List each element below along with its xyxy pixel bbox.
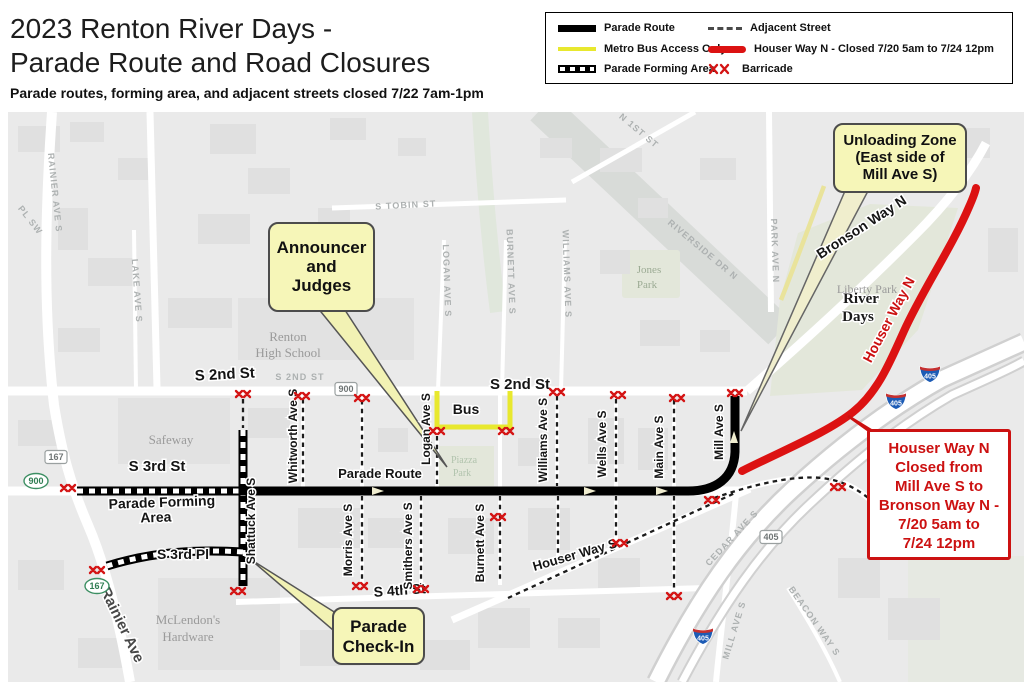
map-canvas: S 2nd StS 2nd StS 3rd StS 3rd PlS 4th St…	[0, 0, 1024, 682]
callout-line: Parade	[334, 617, 423, 637]
street-label: Main Ave S	[652, 415, 666, 478]
state-route-shield: 167	[85, 579, 109, 594]
route-shield: 900	[335, 383, 357, 396]
metro-bus-swatch	[558, 47, 596, 51]
callout-line: 7/24 12pm	[870, 534, 1008, 553]
svg-text:405: 405	[924, 374, 936, 381]
street-label: Mill Ave S	[712, 404, 726, 460]
street-label: Days	[842, 309, 874, 325]
svg-text:405: 405	[697, 636, 709, 643]
callout-line: 7/20 5am to	[870, 515, 1008, 534]
adjacent-street-swatch	[708, 27, 742, 30]
callout-line: Mill Ave S to	[870, 477, 1008, 496]
street-label: Bus	[453, 401, 480, 417]
callout-line: Closed from	[870, 458, 1008, 477]
street-label: Morris Ave S	[341, 504, 355, 576]
closure-swatch	[708, 46, 746, 53]
street-label: S 2nd St	[194, 364, 255, 384]
callout-line: Mill Ave S)	[835, 166, 965, 183]
callout-line: Unloading Zone	[835, 132, 965, 149]
street-label: Burnett Ave S	[473, 504, 487, 582]
state-route-shield: 900	[24, 474, 48, 489]
place-label: Hardware	[162, 629, 213, 644]
unloading-zone-callout: Unloading Zone (East side of Mill Ave S)	[833, 123, 967, 193]
street-label: Whitworth Ave S	[286, 389, 300, 483]
place-label: Piazza	[451, 455, 478, 466]
callout-line: Announcer	[270, 238, 373, 257]
street-label: Shattuck Ave S	[244, 478, 258, 564]
svg-text:167: 167	[48, 452, 63, 462]
route-shield: 405	[760, 531, 782, 544]
callout-line: Bronson Way N -	[870, 496, 1008, 515]
forming-area-swatch	[558, 65, 596, 73]
legend-item-barricade: Barricade	[708, 61, 793, 77]
street-label: S 2nd St	[490, 376, 550, 393]
place-label: Renton	[269, 329, 307, 344]
legend-label: Adjacent Street	[750, 22, 831, 34]
parade-checkin-callout: Parade Check-In	[332, 607, 425, 665]
legend-item-adjacent-street: Adjacent Street	[708, 20, 831, 36]
callout-line: (East side of	[835, 149, 965, 166]
svg-text:405: 405	[890, 401, 902, 408]
svg-text:900: 900	[338, 384, 353, 394]
legend-item-houser-closed: Houser Way N - Closed 7/20 5am to 7/24 1…	[708, 41, 994, 57]
svg-text:405: 405	[763, 532, 778, 542]
legend-item-metro-bus: Metro Bus Access Only	[558, 41, 726, 57]
route-shield: 167	[45, 451, 67, 464]
street-label: Parade Route	[338, 466, 422, 481]
legend-label: Parade Forming Area	[604, 63, 715, 75]
street-label: S 2ND ST	[275, 372, 324, 382]
street-label: Area	[140, 508, 172, 525]
callout-line: and	[270, 257, 373, 276]
parade-route-swatch	[558, 25, 596, 32]
svg-text:167: 167	[89, 581, 104, 591]
callout-line: Judges	[270, 276, 373, 295]
callout-line: Check-In	[334, 637, 423, 657]
legend-label: Barricade	[742, 63, 793, 75]
street-label: Smithers Ave S	[401, 502, 415, 589]
barricade-icon	[708, 63, 734, 75]
legend-label: Parade Route	[604, 22, 675, 34]
place-label: Park	[453, 468, 471, 479]
legend-item-parade-route: Parade Route	[558, 20, 675, 36]
place-label: Safeway	[149, 432, 194, 447]
street-label: S 3rd St	[129, 458, 186, 475]
place-label: Park	[637, 279, 658, 291]
svg-text:900: 900	[28, 476, 43, 486]
page: { "header": { "title_line1": "2023 Rento…	[0, 0, 1024, 682]
street-label: Williams Ave S	[536, 398, 550, 482]
legend-item-forming-area: Parade Forming Area	[558, 61, 715, 77]
place-label: Jones	[637, 264, 661, 276]
legend: Parade Route Metro Bus Access Only Parad…	[545, 12, 1013, 84]
houser-closure-callout: Houser Way N Closed from Mill Ave S to B…	[867, 429, 1011, 560]
street-label: Wells Ave S	[595, 411, 609, 478]
place-label: Liberty Park	[837, 282, 897, 296]
announcer-judges-callout: Announcer and Judges	[268, 222, 375, 312]
piazza-park-area	[436, 446, 494, 486]
street-label: S 3rd Pl	[157, 546, 209, 562]
legend-label: Houser Way N - Closed 7/20 5am to 7/24 1…	[754, 43, 994, 55]
place-label: McLendon's	[156, 612, 220, 627]
callout-line: Houser Way N	[870, 439, 1008, 458]
place-label: High School	[255, 345, 321, 360]
